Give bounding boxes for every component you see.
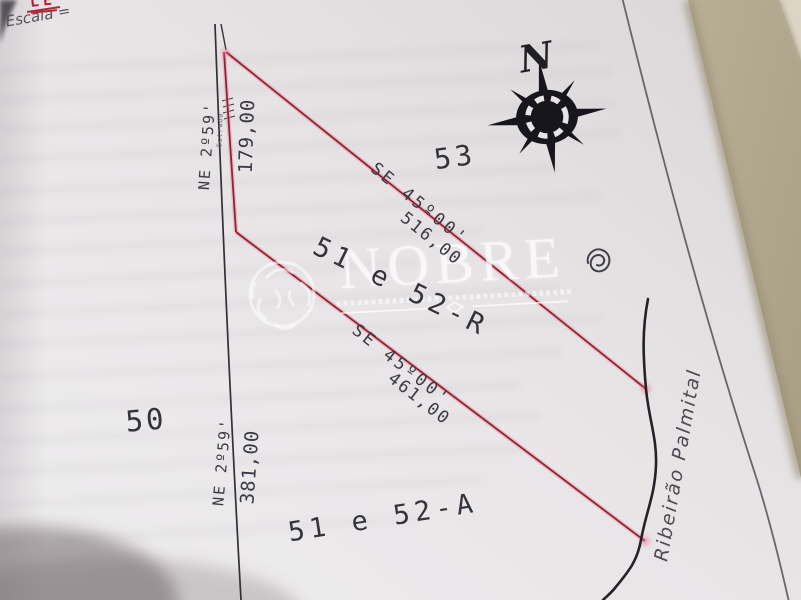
- compass-north-letter: N: [516, 32, 557, 81]
- lot-53-label: 53: [432, 138, 478, 176]
- road-name-label: Estrada: [215, 113, 224, 148]
- lot-50-label: 50: [124, 401, 168, 438]
- road-upper-distance: 179,00: [235, 98, 260, 173]
- page-curl-shade: [0, 0, 46, 600]
- survey-plan-photo: NOBRE Escala = LE 53 SE 45º00' 516,00 51…: [0, 0, 801, 600]
